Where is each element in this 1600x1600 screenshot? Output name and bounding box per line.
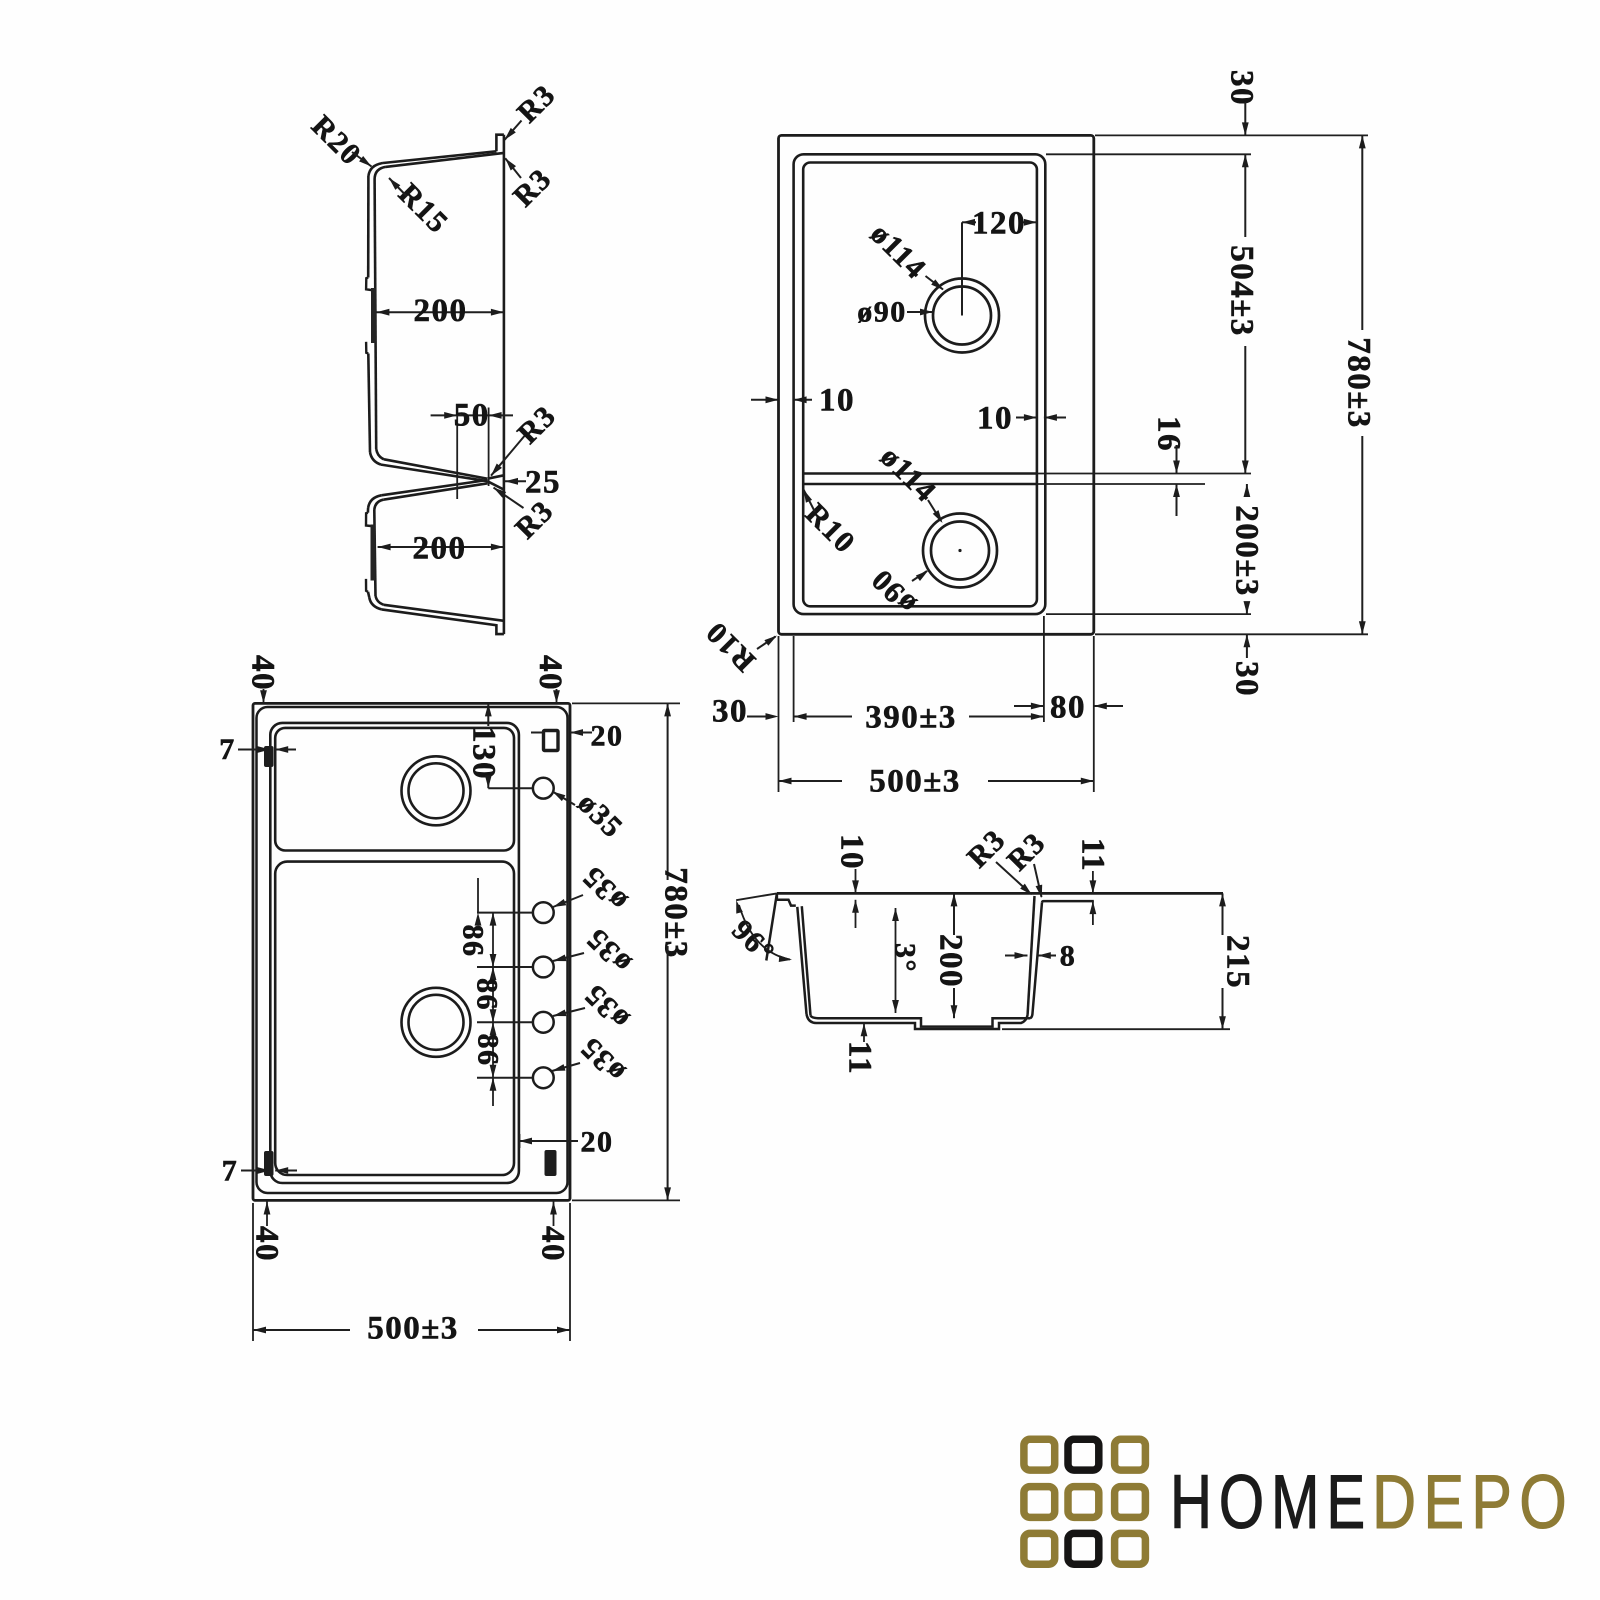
svg-text:7: 7 <box>222 1154 239 1187</box>
svg-text:215: 215 <box>1220 935 1256 989</box>
svg-text:16: 16 <box>1151 416 1187 452</box>
svg-text:10: 10 <box>819 382 855 418</box>
svg-text:7: 7 <box>219 733 236 766</box>
svg-text:120: 120 <box>972 205 1026 241</box>
svg-text:20: 20 <box>581 1125 614 1158</box>
svg-text:500±3: 500±3 <box>367 1310 459 1346</box>
svg-text:20: 20 <box>591 719 624 752</box>
svg-text:780±3: 780±3 <box>1341 337 1377 429</box>
svg-text:86: 86 <box>472 1034 505 1067</box>
svg-text:HOME: HOME <box>1170 1460 1372 1545</box>
svg-text:11: 11 <box>1075 838 1111 872</box>
svg-text:30: 30 <box>712 693 748 729</box>
svg-text:30: 30 <box>1229 661 1265 697</box>
svg-text:200: 200 <box>413 530 467 566</box>
svg-text:390±3: 390±3 <box>865 699 957 735</box>
svg-text:40: 40 <box>535 1226 571 1262</box>
svg-text:200: 200 <box>414 293 468 329</box>
svg-text:86: 86 <box>471 978 504 1011</box>
svg-text:40: 40 <box>532 655 568 691</box>
svg-text:130: 130 <box>466 726 502 780</box>
svg-text:DEPO: DEPO <box>1372 1460 1574 1545</box>
svg-text:10: 10 <box>977 400 1013 436</box>
svg-text:3°: 3° <box>889 943 922 973</box>
svg-text:780±3: 780±3 <box>658 867 694 959</box>
svg-text:ø90: ø90 <box>857 295 907 328</box>
svg-text:86: 86 <box>457 925 490 958</box>
svg-text:50: 50 <box>454 397 490 433</box>
svg-text:25: 25 <box>525 464 561 500</box>
svg-text:200: 200 <box>933 934 969 988</box>
svg-text:40: 40 <box>245 655 281 691</box>
svg-text:8: 8 <box>1060 939 1077 972</box>
svg-text:30: 30 <box>1224 70 1260 106</box>
svg-text:80: 80 <box>1050 689 1086 725</box>
svg-text:10: 10 <box>834 834 870 870</box>
svg-text:500±3: 500±3 <box>869 763 961 799</box>
svg-text:40: 40 <box>249 1226 285 1262</box>
svg-text:200±3: 200±3 <box>1229 505 1265 597</box>
svg-text:504±3: 504±3 <box>1224 245 1260 337</box>
svg-text:11: 11 <box>842 1041 878 1075</box>
